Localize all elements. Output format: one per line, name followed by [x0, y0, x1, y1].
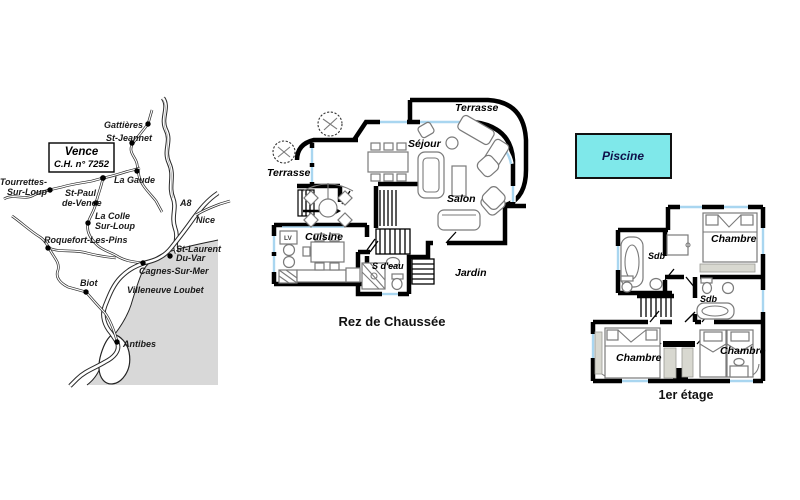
counter-icon [297, 270, 346, 282]
town-label-antibes: Antibes [122, 339, 156, 349]
ground-floor-caption: Rez de Chaussée [339, 314, 446, 329]
town-label-gattieres: Gattières [104, 120, 143, 130]
room-label-sdb-mid: Sdb [700, 294, 718, 304]
closet [682, 348, 693, 377]
dining-table-icon [368, 143, 408, 181]
dot-gattieres [145, 121, 150, 126]
dot-cagnes [140, 260, 145, 265]
radiator [595, 332, 602, 374]
town-label-la-gaude: La Gaude [114, 175, 155, 185]
room-label-sejour: Séjour [408, 138, 442, 150]
basin-icon [723, 283, 734, 294]
town-label-la-colle-1: La Colle [95, 211, 130, 221]
dot-vence [100, 175, 106, 181]
toilet-icon [392, 274, 403, 290]
pool-label: Piscine [602, 149, 644, 163]
town-label-cagnes: Cagnes-Sur-Mer [139, 266, 209, 276]
toilet-icon [621, 276, 633, 292]
town-label-st-paul-2: de-Vence [62, 198, 102, 208]
basin-icon [650, 279, 662, 290]
tree-icon [273, 141, 295, 163]
town-label-roquefort: Roquefort-Les-Pins [44, 235, 128, 245]
vence-box-reference: C.H. n° 7252 [54, 159, 110, 170]
toilet-icon [701, 278, 712, 294]
room-label-s-deau: S d'eau [372, 261, 404, 271]
room-label-chambre-left: Chambre [616, 352, 662, 364]
sink-icon [284, 245, 295, 256]
tree-icon [318, 112, 342, 136]
room-label-salon: Salon [447, 193, 476, 205]
town-label-biot: Biot [80, 278, 98, 288]
vence-box-title: Vence [65, 146, 99, 158]
staircase-icon [641, 298, 671, 317]
room-label-terrasse-top: Terrasse [455, 102, 499, 114]
dot-roquefort [45, 245, 50, 250]
staircase-icon [376, 190, 410, 254]
town-label-st-laurent-2: Du-Var [176, 253, 206, 263]
road-label-a8: A8 [179, 198, 192, 208]
town-label-st-paul-1: St-Paul [65, 188, 97, 198]
dresser-icon [667, 235, 690, 255]
town-label-nice: Nice [196, 215, 215, 225]
room-label-terrasse-left: Terrasse [267, 167, 311, 179]
dot-la-colle [85, 220, 90, 225]
radiator [700, 264, 755, 272]
pool: Piscine [576, 134, 671, 178]
dot-antibes [114, 339, 119, 344]
bathtub-icon [697, 303, 734, 319]
room-label-jardin: Jardin [455, 267, 487, 279]
dot-biot [83, 289, 88, 294]
town-label-villeneuve: Villeneuve Loubet [127, 285, 205, 295]
listing-plan-sheet: Gattières St-Jeannet La Gaude Tourrettes… [0, 0, 800, 500]
town-label-tourrettes-2: Sur-Loup [7, 187, 47, 197]
garden-steps-icon [412, 259, 434, 284]
dot-la-gaude [134, 168, 139, 173]
town-label-st-jeannet: St-Jeannet [106, 133, 153, 143]
first-floor-caption: 1er étage [659, 388, 714, 402]
room-label-sdb-top: Sdb [648, 251, 666, 261]
town-label-la-colle-2: Sur-Loup [95, 221, 135, 231]
dot-tourrettes [47, 187, 52, 192]
dot-st-laurent [167, 253, 172, 258]
room-label-chambre-top: Chambre [711, 233, 757, 245]
dishwasher-label: LV [284, 235, 292, 242]
vence-reference-box: Vence C.H. n° 7252 [49, 143, 114, 172]
closet [664, 348, 676, 378]
counter-icon [346, 268, 360, 282]
area-map: Gattières St-Jeannet La Gaude Tourrettes… [0, 95, 235, 390]
first-floor-plan: Piscine [570, 125, 775, 405]
ground-floor-plan: LV [250, 85, 550, 335]
town-label-tourrettes-1: Tourrettes- [0, 177, 47, 187]
room-label-chambre-right: Chambre [720, 345, 766, 357]
room-label-cuisine: Cuisine [305, 231, 343, 243]
sink-icon [284, 257, 295, 268]
cooker-icon [279, 270, 297, 283]
